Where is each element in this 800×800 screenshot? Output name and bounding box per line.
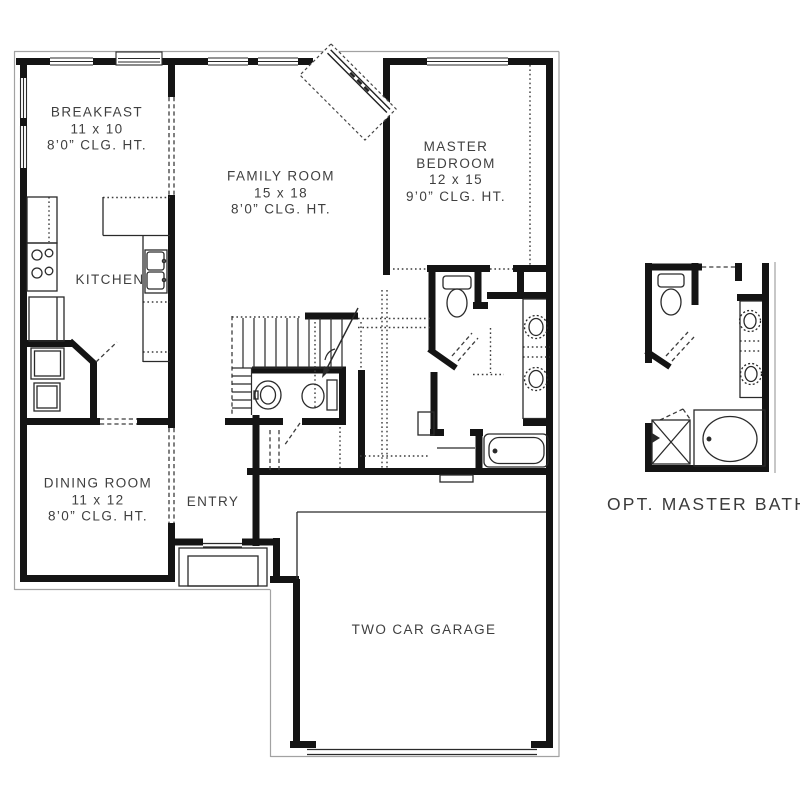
room-name: KITCHEN — [75, 272, 144, 289]
counter-icon — [27, 197, 57, 243]
room-name: ENTRY — [187, 494, 240, 511]
room-ceiling-height: 8’0” CLG. HT. — [47, 137, 147, 154]
room-name: DINING ROOM — [44, 475, 152, 492]
vanity-double-sink-icon — [740, 301, 763, 398]
range-icon — [27, 243, 57, 291]
room-label-dining-room: DINING ROOM 11 x 12 8’0” CLG. HT. — [44, 475, 152, 525]
toilet-icon — [302, 380, 337, 410]
exterior-face-lines — [14, 52, 775, 758]
bathtub-icon — [484, 434, 548, 467]
master-bath-fixtures — [443, 276, 548, 467]
dryer-icon — [34, 383, 60, 411]
corner-fireplace-icon — [300, 44, 396, 140]
room-dimensions: 11 x 12 — [44, 492, 152, 509]
room-label-opt-master-bath: OPT. MASTER BATH — [607, 496, 800, 513]
refrigerator-icon — [29, 297, 64, 341]
garage-step-icon — [440, 475, 473, 482]
room-name: TWO CAR GARAGE — [352, 622, 497, 639]
kitchen-double-sink-icon — [145, 250, 167, 293]
walls — [16, 58, 769, 748]
room-label-garage: TWO CAR GARAGE — [352, 622, 497, 639]
room-ceiling-height: 8’0” CLG. HT. — [227, 201, 335, 218]
vanity-double-sink-icon — [523, 299, 548, 419]
floor-plan-canvas: BREAKFAST 11 x 10 8’0” CLG. HT. FAMILY R… — [0, 0, 800, 800]
washer-icon — [31, 348, 64, 379]
garden-tub-icon — [694, 410, 765, 466]
powder-bath-fixtures — [254, 380, 337, 410]
room-name: OPT. MASTER BATH — [607, 496, 800, 513]
room-ceiling-height: 9’0” CLG. HT. — [406, 189, 506, 206]
room-label-breakfast: BREAKFAST 11 x 10 8’0” CLG. HT. — [47, 104, 147, 154]
room-label-kitchen: KITCHEN — [75, 272, 144, 289]
room-name: BEDROOM — [406, 156, 506, 173]
room-label-master-bedroom: MASTER BEDROOM 12 x 15 9’0” CLG. HT. — [406, 139, 506, 205]
room-dimensions: 12 x 15 — [406, 172, 506, 189]
box-bay-window-icon — [116, 52, 162, 65]
pedestal-sink-icon — [254, 381, 281, 409]
toilet-icon — [443, 276, 471, 317]
room-name: MASTER — [406, 139, 506, 156]
room-ceiling-height: 8’0” CLG. HT. — [44, 508, 152, 525]
room-name: BREAKFAST — [47, 104, 147, 121]
toilet-icon — [658, 274, 684, 315]
room-dimensions: 11 x 10 — [47, 121, 147, 138]
opt-master-bath-fixtures — [652, 274, 765, 466]
shower-icon — [652, 420, 690, 464]
porch-stoop-icon — [179, 548, 267, 586]
room-dimensions: 15 x 18 — [227, 185, 335, 202]
room-label-entry: ENTRY — [187, 494, 240, 511]
room-label-family-room: FAMILY ROOM 15 x 18 8’0” CLG. HT. — [227, 168, 335, 218]
room-name: FAMILY ROOM — [227, 168, 335, 185]
